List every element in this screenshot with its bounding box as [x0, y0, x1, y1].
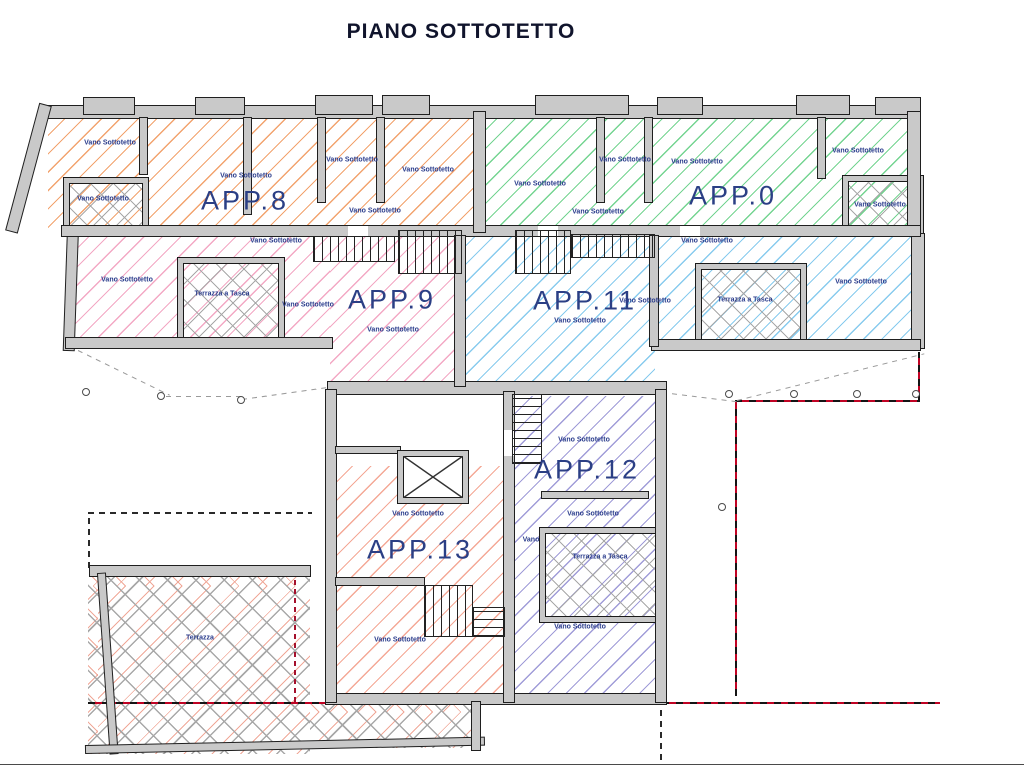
- room-label: Vano Sottotetto: [220, 173, 272, 180]
- room-label: Vano Sottotetto: [619, 298, 671, 305]
- staircase: [424, 585, 473, 637]
- column-marker: [718, 503, 726, 511]
- wall-outer-left: [6, 104, 50, 232]
- wall: [336, 578, 424, 585]
- room-label: Vano Sottotetto: [558, 437, 610, 444]
- door-opening: [348, 226, 368, 236]
- terrazza-zone: [88, 576, 310, 754]
- room-label: Terrazza a Tasca: [573, 554, 628, 561]
- room-label: Vano Sottotetto: [101, 277, 153, 284]
- room-label: Vano Sottotetto: [554, 318, 606, 325]
- wall: [318, 118, 325, 202]
- room-label: Vano Sottotetto: [599, 157, 651, 164]
- boundary-dashed-line: [294, 576, 296, 702]
- apartment-label-app8: APP.8: [201, 186, 289, 217]
- wall: [658, 98, 702, 114]
- column-marker: [853, 390, 861, 398]
- room-label: Vano Sottotetto: [572, 209, 624, 216]
- wall: [818, 118, 825, 178]
- wall-party: [474, 112, 485, 232]
- room-label: Vano Sottotetto: [671, 159, 723, 166]
- wall: [656, 390, 666, 702]
- staircase: [571, 234, 655, 258]
- wall: [66, 338, 332, 348]
- wall: [196, 98, 244, 114]
- elevator-x-icon: [403, 456, 463, 498]
- room-label: Vano Sottotetto: [367, 327, 419, 334]
- page-title: PIANO SOTTOTETTO: [347, 20, 576, 44]
- room-label: Vano Sottotetto: [349, 208, 401, 215]
- floor-plan-canvas: PIANO SOTTOTETTO: [0, 0, 1024, 768]
- wall: [328, 382, 666, 394]
- wall: [62, 226, 920, 236]
- wall: [377, 118, 384, 202]
- roof-dashed-line: [242, 386, 333, 400]
- roof-dashed-line: [737, 353, 925, 401]
- staircase: [515, 230, 571, 274]
- room-label: Vano Sottotetto: [835, 279, 887, 286]
- boundary-dashed-line: [660, 706, 662, 760]
- room-label: Vano Sottotetto: [84, 140, 136, 147]
- wall: [316, 96, 372, 114]
- wall: [383, 96, 429, 114]
- boundary-dashed-line: [88, 512, 312, 514]
- wall: [84, 98, 134, 114]
- column-marker: [237, 396, 245, 404]
- terrazza-tasca-app11: [696, 264, 806, 346]
- staircase: [473, 607, 505, 637]
- roof-dashed-line: [78, 350, 170, 396]
- wall: [326, 694, 666, 704]
- apartment-label-app0: APP.0: [689, 181, 777, 212]
- terrazza-tasca-app9: [178, 258, 284, 348]
- wall-outer-right: [908, 112, 920, 234]
- room-label: Vano Sottotetto: [514, 181, 566, 188]
- column-marker: [725, 390, 733, 398]
- door-opening: [680, 226, 700, 236]
- room-label: Vano Sottotetto: [392, 511, 444, 518]
- room-label: Vano Sottotetto: [832, 148, 884, 155]
- boundary-dashed-line: [735, 400, 737, 696]
- room-label: Vano Sottotetto: [282, 302, 334, 309]
- room-label: Terrazza a Tasca: [195, 291, 250, 298]
- room-label: Vano Sottotetto: [567, 511, 619, 518]
- wall: [536, 96, 628, 114]
- staircase: [512, 394, 542, 464]
- terrazza-tasca-app12: [540, 528, 664, 622]
- wall: [472, 702, 480, 750]
- room-label: Vano Sottotetto: [374, 637, 426, 644]
- staircase: [313, 236, 395, 262]
- column-marker: [790, 390, 798, 398]
- room-label: Vano Sottotetto: [402, 167, 454, 174]
- apartment-label-app9: APP.9: [348, 285, 436, 316]
- room-label: Vano Sottotetto: [326, 157, 378, 164]
- wall: [326, 390, 336, 702]
- boundary-dashed-line: [735, 400, 920, 402]
- room-label: Vano Sottotetto: [681, 238, 733, 245]
- wall: [797, 96, 849, 114]
- wall-outer-right: [912, 234, 924, 348]
- drawing-frame-edge: [0, 764, 1024, 765]
- room-label: Terrazza: [186, 635, 214, 642]
- room-label: Vano Sottotetto: [554, 624, 606, 631]
- wall: [542, 492, 648, 498]
- room-label: Vano Sottotetto: [250, 238, 302, 245]
- roof-dashed-line: [166, 396, 242, 397]
- apartment-label-app12: APP.12: [534, 455, 640, 486]
- column-marker: [912, 390, 920, 398]
- room-label: Vano Sottotetto: [77, 196, 129, 203]
- wall: [652, 340, 920, 350]
- room-label: Vano Sottotetto: [854, 202, 906, 209]
- wall: [336, 447, 400, 453]
- boundary-dashed-line: [88, 512, 90, 568]
- apartment-label-app13: APP.13: [367, 535, 473, 566]
- staircase: [398, 230, 462, 274]
- room-label: Vano: [523, 537, 540, 544]
- wall: [90, 566, 310, 576]
- column-marker: [157, 392, 165, 400]
- column-marker: [82, 388, 90, 396]
- room-label: Terrazza a Tasca: [718, 297, 773, 304]
- elevator-shaft: [398, 451, 468, 503]
- wall: [140, 118, 147, 174]
